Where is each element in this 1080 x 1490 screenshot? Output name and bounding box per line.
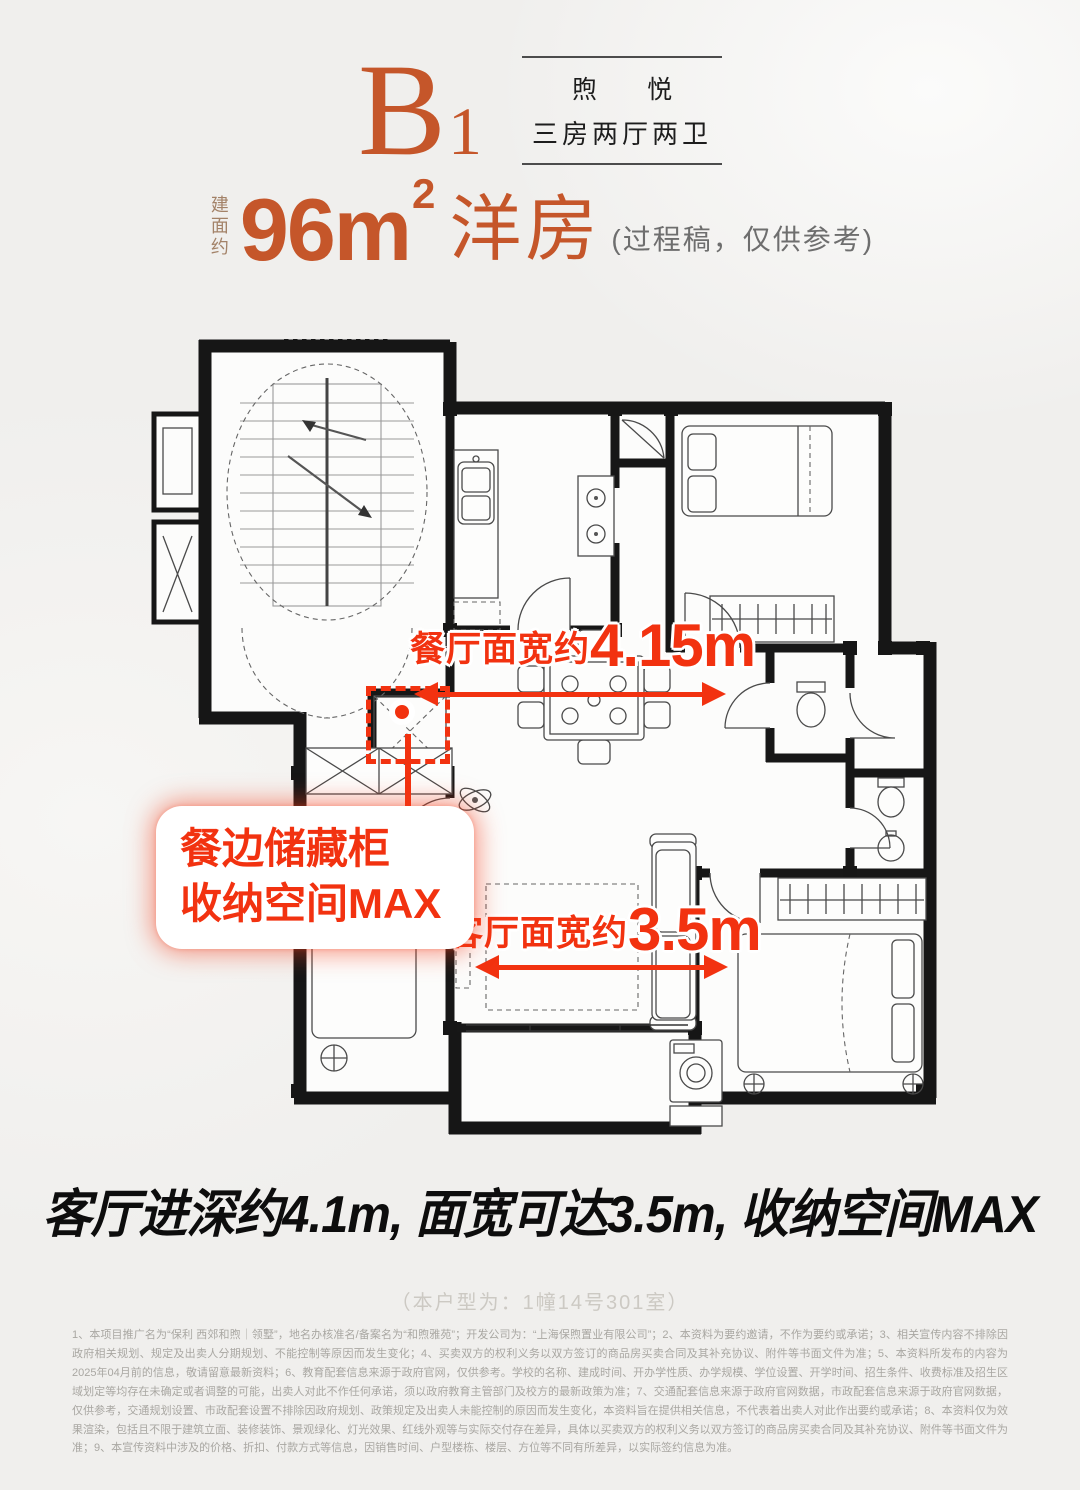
- storage-leader-line: [405, 734, 411, 810]
- living-width-label: 客厅面宽约: [448, 905, 628, 956]
- floor-plan: [150, 328, 940, 1140]
- dining-width-annotation: 餐厅面宽约 4.15m: [410, 616, 755, 676]
- shaft-b-floor: [154, 522, 201, 622]
- poster-page: B 1 煦 悦 三房两厅两卫 建面约 96m 2 洋房 (过程稿，仅供参考): [0, 0, 1080, 1490]
- area-line: 建面约 96m 2 洋房 (过程稿，仅供参考): [0, 186, 1080, 274]
- unit-note: （本户型为：1幢14号301室）: [0, 1286, 1080, 1315]
- unit-code: B 1: [358, 44, 482, 176]
- dining-width-label: 餐厅面宽约: [410, 621, 590, 672]
- living-width-arrow-icon: [498, 965, 705, 970]
- area-superscript: 2: [412, 170, 435, 218]
- dining-width-arrow-icon: [437, 692, 703, 697]
- living-width-annotation: 客厅面宽约 3.5m: [448, 900, 761, 960]
- area-suffix: 洋房: [449, 194, 601, 266]
- storage-callout-line2: 收纳空间MAX: [180, 877, 474, 932]
- project-name: 煦 悦: [532, 70, 712, 106]
- project-name-box: 煦 悦 三房两厅两卫: [522, 56, 722, 165]
- storage-callout: 餐边储藏柜 收纳空间MAX: [156, 806, 474, 949]
- storage-marker-icon: [389, 699, 415, 725]
- unit-code-letter: B: [358, 44, 446, 176]
- area-prefix: 建面约: [206, 195, 232, 265]
- disclaimer-text: 1、本项目推广名为“保利 西郊和煦｜领墅”，地名办核准名/备案名为“和煦雅苑”；…: [72, 1326, 1008, 1458]
- unit-code-number: 1: [448, 97, 482, 165]
- living-width-value: 3.5m: [628, 900, 761, 960]
- area-note: (过程稿，仅供参考): [611, 218, 874, 258]
- dining-width-value: 4.15m: [590, 616, 755, 676]
- area-value: 96m: [240, 186, 410, 274]
- unit-layout: 三房两厅两卫: [532, 114, 712, 151]
- floor-plan-svg: [150, 328, 940, 1140]
- storage-callout-line1: 餐边储藏柜: [180, 822, 474, 877]
- tagline: 客厅进深约4.1m, 面宽可达3.5m, 收纳空间MAX: [32, 1172, 1047, 1247]
- header: B 1 煦 悦 三房两厅两卫: [0, 44, 1080, 176]
